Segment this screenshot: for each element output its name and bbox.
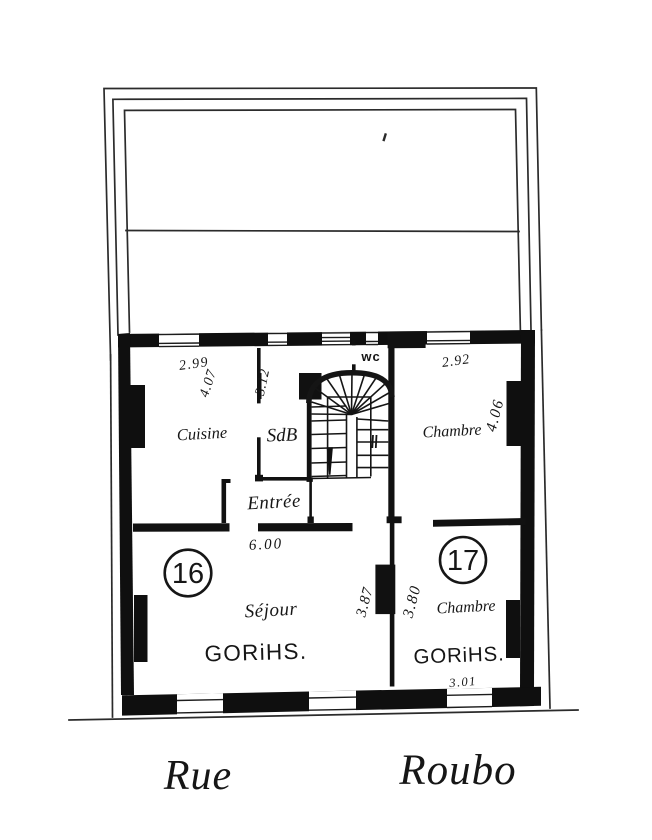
svg-text:GORiHS.: GORiHS.	[413, 642, 505, 668]
svg-text:4.07: 4.07	[197, 368, 220, 400]
svg-text:3.80: 3.80	[399, 583, 424, 620]
svg-text:SdB: SdB	[266, 424, 298, 446]
svg-text:Roubo: Roubo	[398, 747, 516, 794]
svg-text:Rue: Rue	[163, 753, 232, 799]
svg-text:GORiHS.: GORiHS.	[204, 639, 307, 667]
svg-text:3.12: 3.12	[253, 368, 273, 398]
svg-text:Entrée: Entrée	[246, 491, 302, 515]
svg-text:Séjour: Séjour	[244, 599, 298, 623]
svg-text:Cuisine: Cuisine	[176, 423, 227, 445]
svg-text:Chambre: Chambre	[436, 597, 496, 617]
svg-text:3.87: 3.87	[353, 585, 377, 620]
svg-text:4.06: 4.06	[483, 397, 508, 433]
svg-text:Chambre: Chambre	[422, 421, 482, 441]
svg-text:16: 16	[172, 558, 204, 590]
svg-text:wc: wc	[360, 349, 380, 364]
svg-text:3.01: 3.01	[448, 674, 478, 690]
svg-text:17: 17	[447, 545, 479, 577]
svg-text:2.92: 2.92	[441, 352, 471, 371]
svg-text:6.00: 6.00	[249, 536, 284, 554]
